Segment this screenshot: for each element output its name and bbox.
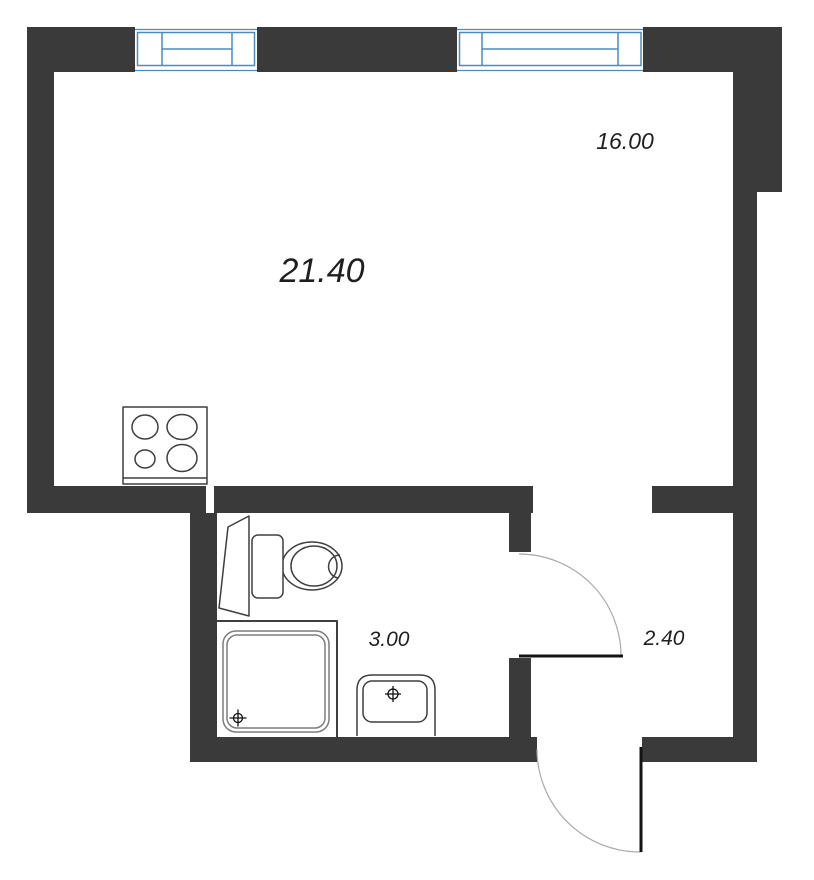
stove-burner: [167, 415, 197, 440]
floor-plan: 21.40 16.00 3.00 2.40: [0, 0, 814, 880]
door-swing-arcs: [519, 554, 641, 852]
label-bathroom-area: 3.00: [369, 628, 410, 651]
shower-icon: [217, 621, 337, 737]
label-room-area: 16.00: [596, 128, 654, 154]
wall-right-upper: [733, 27, 782, 192]
wall-left: [27, 27, 54, 513]
bathroom-door-swing-arc: [519, 554, 621, 656]
wall-bathroom-bottom: [190, 737, 537, 762]
wall-bathroom-left: [190, 486, 217, 762]
stove-burner: [132, 415, 158, 439]
entry-door-swing-arc: [537, 749, 641, 852]
stove-icon: [123, 407, 207, 484]
stove-burner: [135, 450, 155, 468]
stove-burner: [167, 445, 197, 472]
sink-icon: [357, 675, 435, 736]
wall-bathroom-right-lower: [509, 658, 531, 737]
toilet-icon: [219, 516, 342, 616]
fixtures: [123, 407, 435, 737]
wall-bottom-right-segment: [642, 737, 757, 762]
wall-bottom-main-left: [27, 486, 533, 513]
wall-joint-seam: [206, 486, 214, 513]
toilet-cistern: [252, 535, 283, 598]
floor-plan-canvas: 21.40 16.00 3.00 2.40: [0, 0, 814, 880]
wall-bottom-main-right: [652, 486, 757, 513]
sink-basin: [363, 681, 427, 722]
toilet-panel: [219, 516, 249, 616]
label-hall-area: 2.40: [643, 627, 685, 650]
wall-bathroom-right-upper: [509, 513, 531, 552]
label-living-area: 21.40: [278, 252, 364, 290]
wall-right-lower: [733, 192, 757, 762]
walls: [27, 27, 782, 762]
